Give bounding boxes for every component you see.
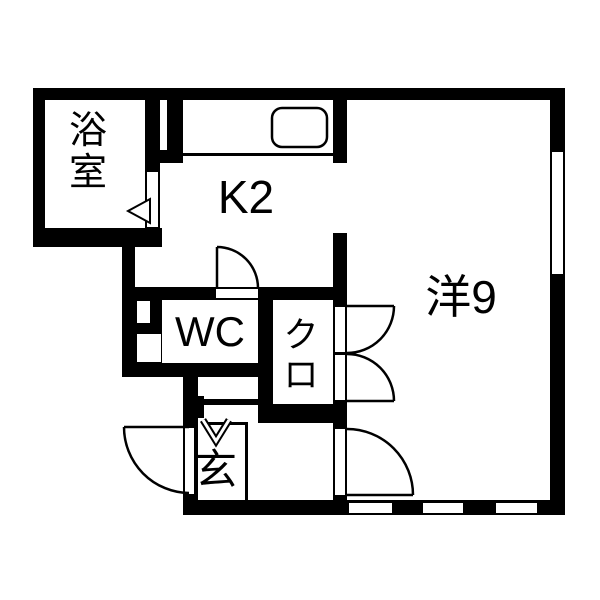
room-label-closet: クロ	[282, 316, 320, 396]
kitchen-sink	[272, 108, 327, 147]
wc-door-leaf	[215, 288, 259, 299]
pipe-space-slot	[160, 100, 167, 150]
room-door-leaf	[334, 428, 346, 496]
wall-left-bathroom	[33, 88, 45, 247]
right-wall-window	[552, 152, 563, 274]
room-label-western-room: 洋9	[401, 272, 521, 322]
room-label-entrance: 玄	[156, 448, 276, 492]
wall-wc-bottom	[122, 363, 273, 377]
bottom-window-segment-2	[423, 503, 463, 513]
wall-bathroom-bottom	[33, 228, 162, 247]
wall-divider-upper	[333, 88, 347, 163]
wc-side-niche-upper	[137, 301, 150, 323]
room-label-toilet: WC	[150, 310, 270, 354]
room-label-kitchen: K2	[186, 172, 306, 222]
bottom-window-segment-1	[349, 503, 392, 513]
wall-pipe-space-stub	[167, 100, 183, 152]
entrance-step-top-edge	[202, 399, 260, 405]
closet-door-swing-lower	[347, 354, 394, 401]
room-door-swing	[347, 429, 413, 495]
wall-top	[33, 88, 565, 100]
wc-door-swing	[217, 247, 258, 288]
floorplan-canvas: 浴室 K2 洋9 WC クロ 玄	[0, 0, 600, 600]
wall-pipe-space-cap	[145, 150, 183, 163]
closet-door-leaf-lower	[334, 354, 346, 401]
bathroom-door-triangle-marker	[128, 199, 150, 223]
closet-door-swing-upper	[347, 306, 394, 353]
wall-left-middle	[122, 243, 135, 377]
kitchen-counter-edge	[183, 153, 333, 156]
wall-closet-bottom	[258, 404, 347, 423]
bottom-window-segment-3	[496, 503, 537, 513]
room-label-bathroom: 浴室	[66, 110, 110, 194]
closet-door-leaf-upper	[334, 306, 346, 353]
